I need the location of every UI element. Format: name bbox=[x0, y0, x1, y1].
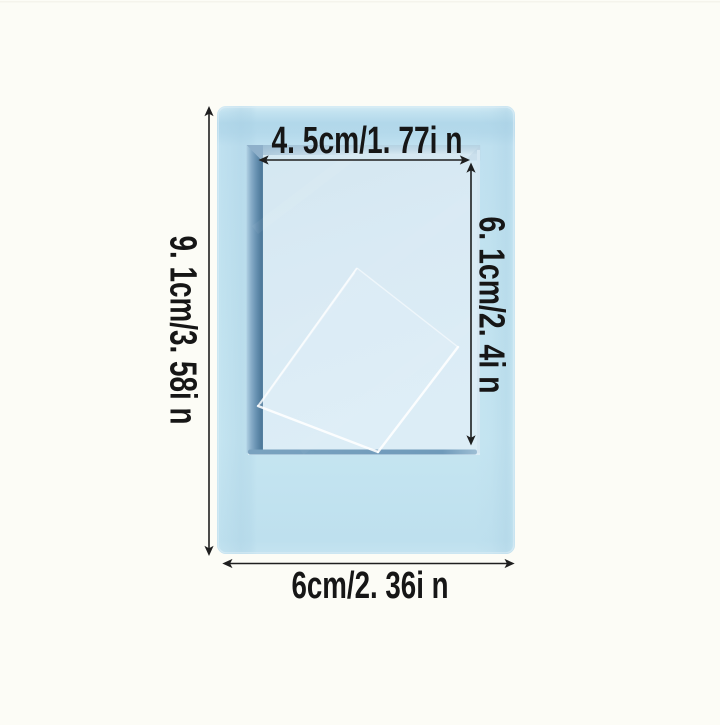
svg-text:4. 5cm/1. 77i n: 4. 5cm/1. 77i n bbox=[272, 120, 463, 162]
svg-text:6. 1cm/2. 4i n: 6. 1cm/2. 4i n bbox=[472, 217, 513, 394]
svg-text:9. 1cm/3. 58i n: 9. 1cm/3. 58i n bbox=[162, 236, 204, 425]
svg-text:6cm/2. 36i n: 6cm/2. 36i n bbox=[292, 565, 449, 607]
